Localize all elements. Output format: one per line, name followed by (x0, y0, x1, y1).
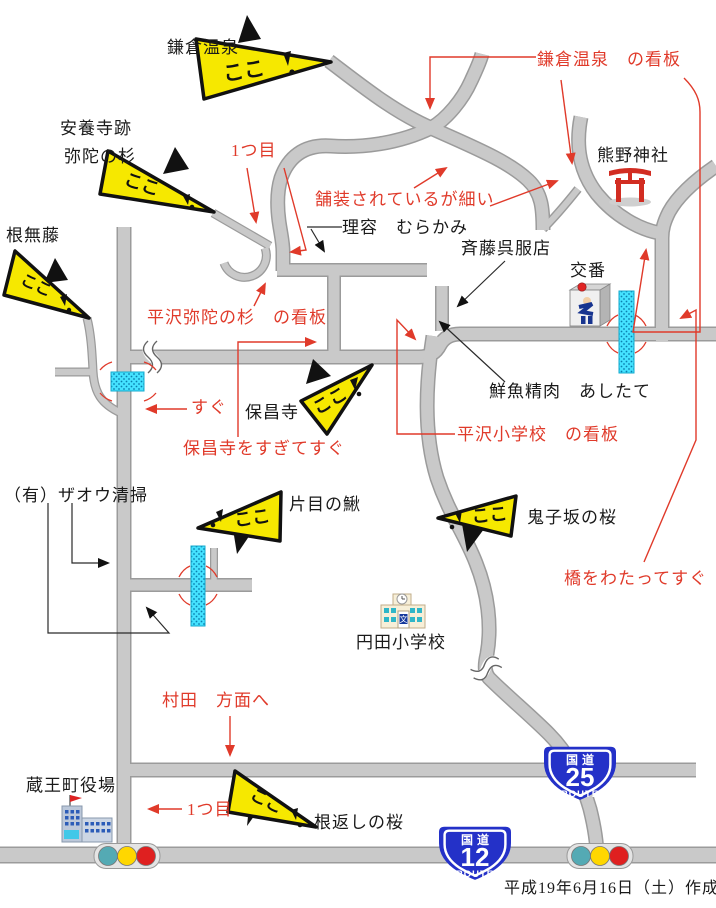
footer-created-date: 平成19年6月16日（土）作成 (504, 880, 716, 898)
label-anyoji-ato: 安養寺跡 (60, 119, 132, 139)
label-nemunashifuji: 根無藤 (6, 226, 60, 246)
label-riyo-murakami: 理容 むらかみ (342, 218, 468, 238)
label-katame-no-kajika: 片目の鰍 (289, 495, 361, 515)
note-shogakko-kanban: 平沢小学校 の看板 (457, 425, 619, 445)
route-map: 文 国道 25 ROUTE (0, 0, 716, 908)
leader-zao-1 (72, 503, 108, 563)
label-sengyo-ashitate: 鮮魚精肉 あしたて (489, 382, 651, 402)
label-kamakura-onsen: 鎌倉温泉 (167, 38, 239, 58)
koko-flag-hoshoji: ここ (301, 359, 372, 434)
shield-route: ROUTE (456, 869, 494, 880)
leader-kanban-2 (561, 80, 572, 163)
traffic-light-icon (567, 844, 633, 869)
school-mark: 文 (400, 614, 408, 624)
label-mida-no-sugi: 弥陀の杉 (64, 147, 136, 167)
town-hall-icon (62, 795, 112, 842)
torii-icon (609, 168, 651, 207)
label-zaomachi-yakuba: 蔵王町役場 (26, 776, 116, 796)
note-hashi-sugu: 橋をわたってすぐ (564, 569, 707, 589)
note-hosoi: 舗装されているが細い (315, 190, 495, 210)
shield-route: ROUTE (561, 789, 599, 800)
note-hoshoji-sugu: 保昌寺をすぎてすぐ (183, 439, 345, 459)
route-12-shield: 国道 12 ROUTE (439, 827, 511, 880)
shield-number: 12 (461, 842, 490, 872)
label-onikozaka: 鬼子坂の桜 (527, 508, 617, 528)
label-koban: 交番 (570, 261, 606, 281)
label-enda-shogakko: 円田小学校 (356, 633, 446, 653)
note-hitotsume-top: 1つ目 (231, 141, 277, 161)
note-sugu: すぐ (191, 398, 227, 418)
koko-text: ここ (471, 503, 509, 526)
leader-hitotsume-1 (247, 168, 256, 222)
note-hitotsume-bottom: 1つ目 (187, 800, 233, 820)
leader-saito (458, 261, 505, 306)
leader-zao-2 (48, 503, 169, 633)
route-25-shield: 国道 25 ROUTE (544, 747, 616, 800)
koko-flag-katame-no-kajika: ここ (198, 492, 281, 554)
koko-flag-negaeshi: ここ (228, 771, 316, 827)
label-hoshoji: 保昌寺 (245, 403, 299, 423)
label-negaeshi: 根返しの桜 (314, 813, 404, 833)
leader-hashi (644, 310, 696, 562)
koko-flag-nemunashifuji: ここ (4, 251, 89, 318)
police-box-icon (570, 283, 610, 326)
note-murata: 村田 方面へ (162, 691, 270, 711)
leader-mida-kanban (254, 284, 265, 306)
leader-hosoi-1 (414, 168, 446, 188)
school-icon: 文 (381, 594, 425, 628)
label-saito-gofukuten: 斉藤呉服店 (461, 239, 551, 259)
note-kamakura-kanban: 鎌倉温泉 の看板 (537, 50, 681, 70)
shield-number: 25 (566, 762, 595, 792)
label-kumano-jinja: 熊野神社 (597, 146, 669, 166)
traffic-light-icon (94, 844, 160, 869)
label-zao-seiso: （有）ザオウ清掃 (4, 486, 148, 506)
note-mida-kanban: 平沢弥陀の杉 の看板 (147, 308, 327, 328)
